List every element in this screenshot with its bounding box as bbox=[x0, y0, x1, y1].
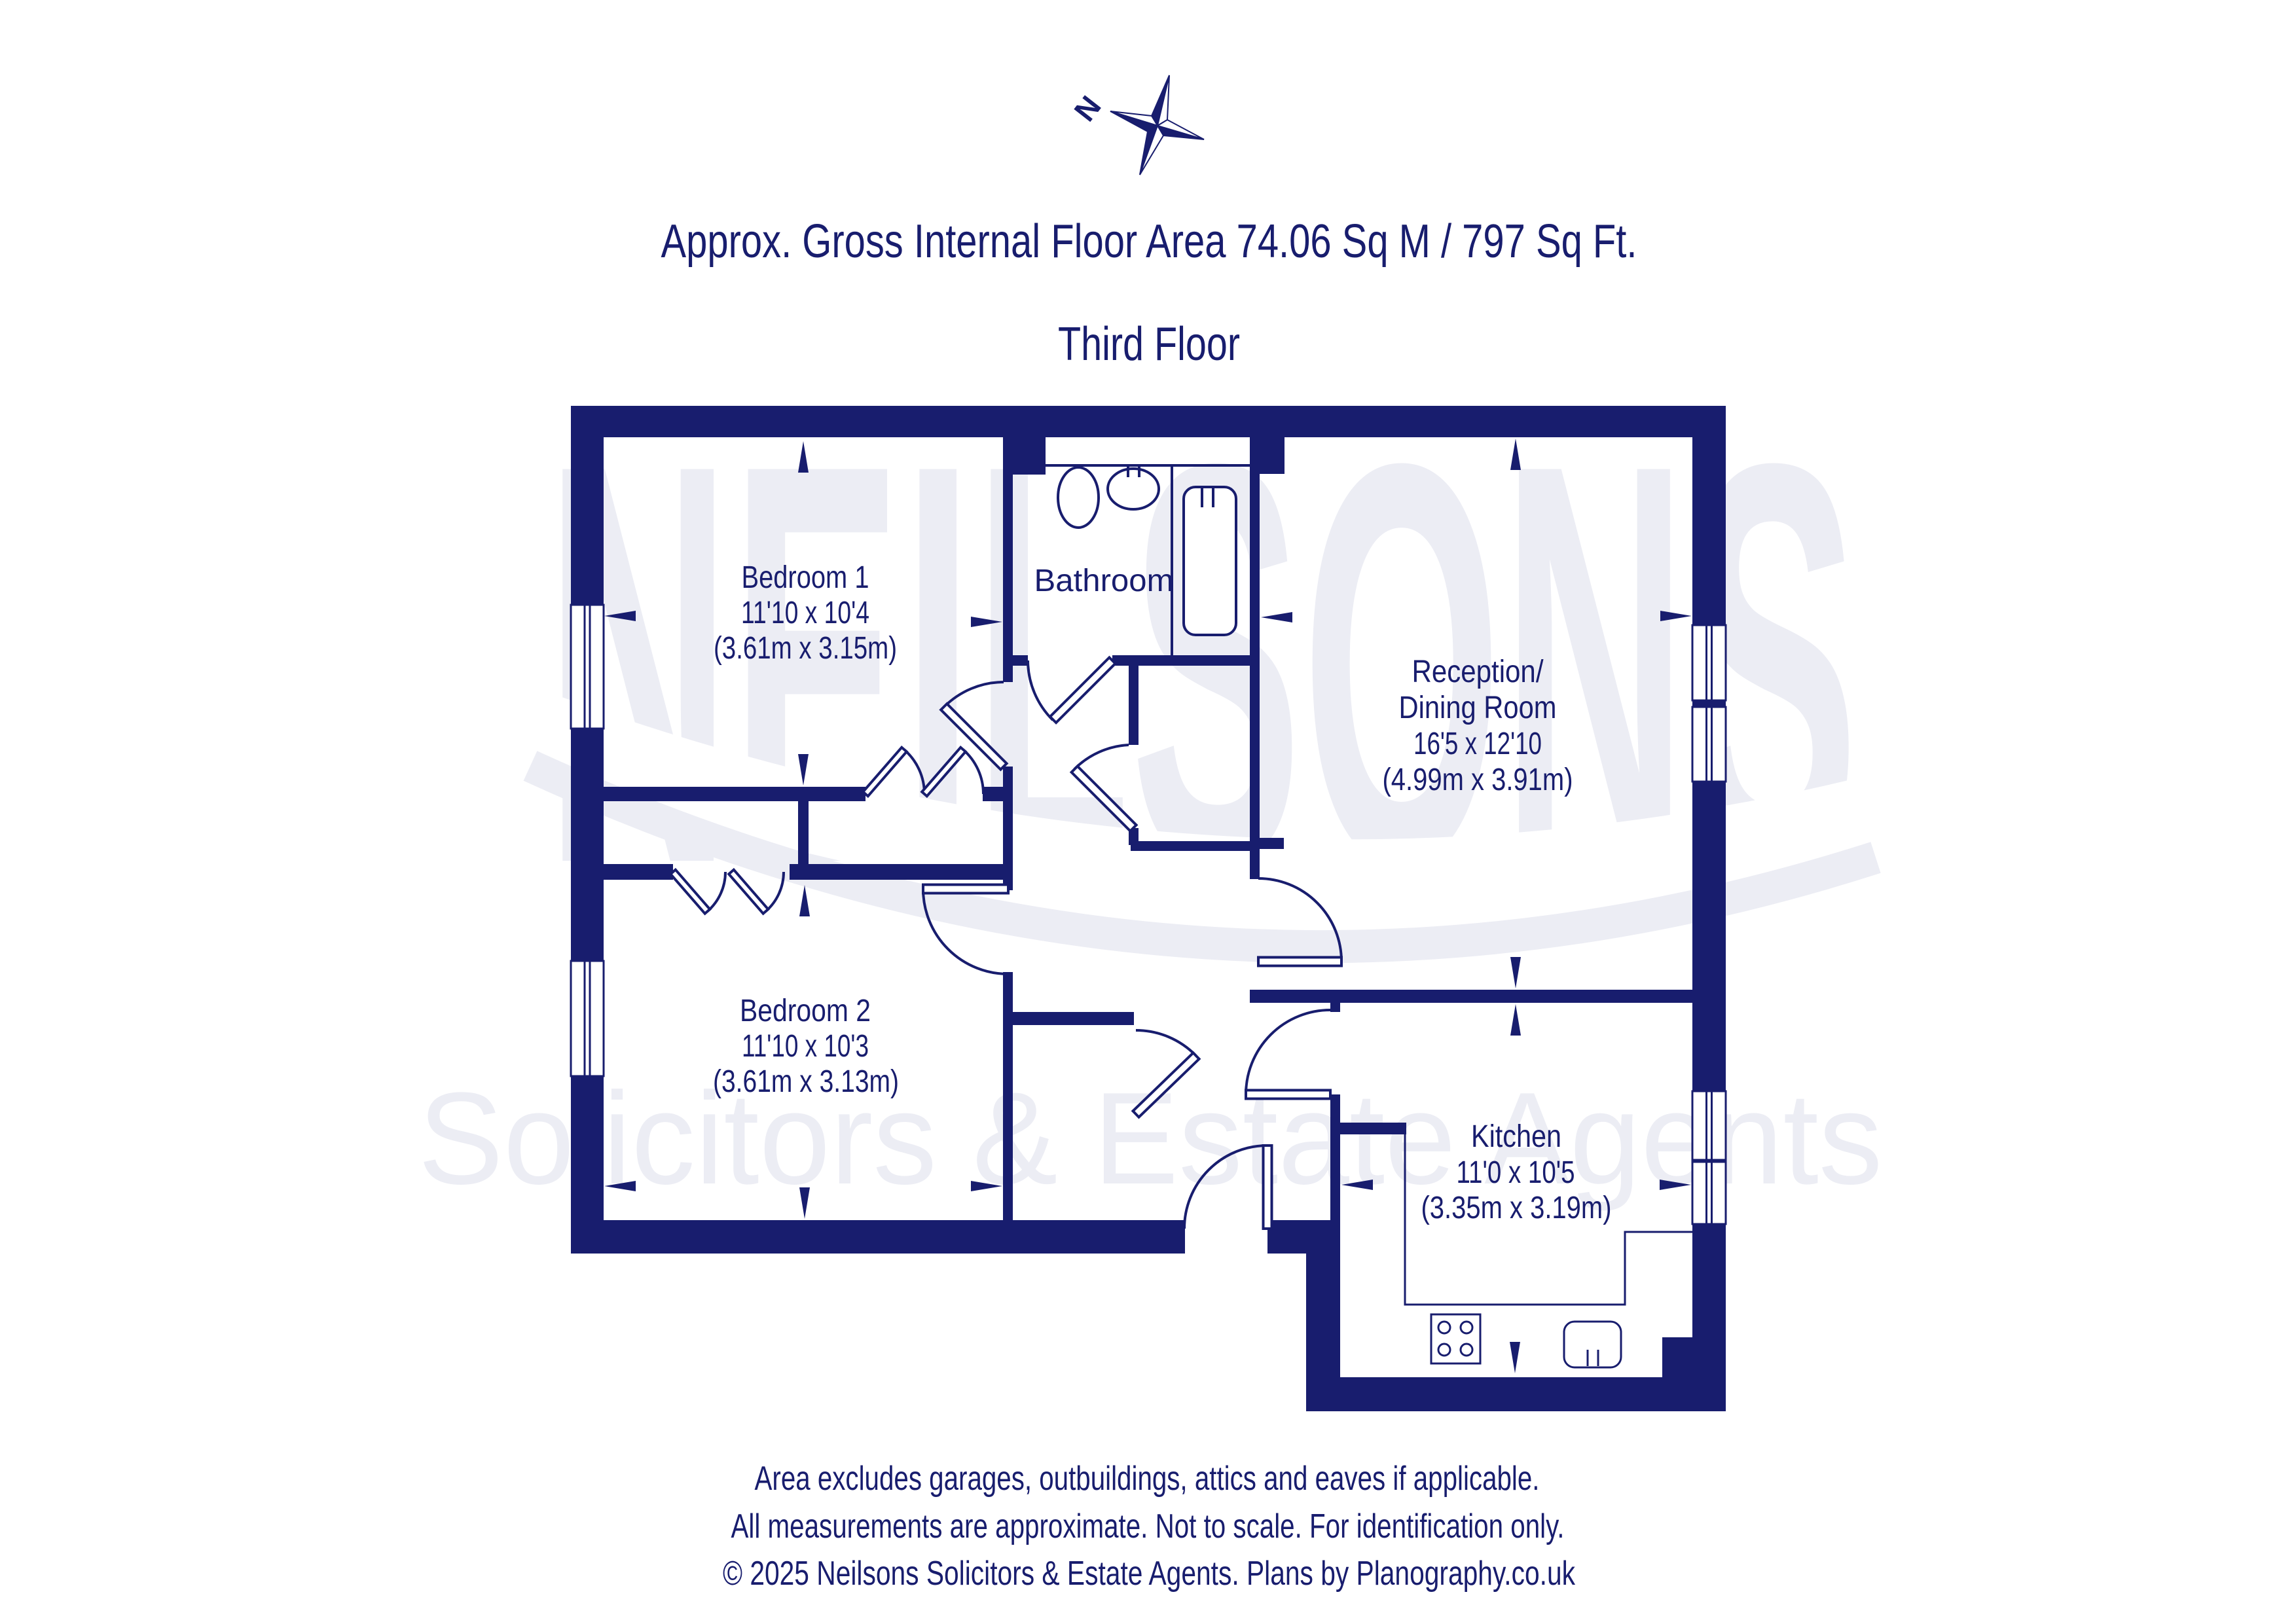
svg-text:© 2025 Neilsons Solicitors & E: © 2025 Neilsons Solicitors & Estate Agen… bbox=[723, 1555, 1576, 1593]
svg-text:(3.61m x 3.13m): (3.61m x 3.13m) bbox=[713, 1064, 899, 1099]
svg-text:Reception/: Reception/ bbox=[1412, 655, 1544, 689]
svg-text:(4.99m x 3.91m): (4.99m x 3.91m) bbox=[1383, 763, 1573, 797]
svg-text:Approx. Gross Internal Floor A: Approx. Gross Internal Floor Area 74.06 … bbox=[661, 215, 1637, 268]
svg-text:Area excludes garages, outbuil: Area excludes garages, outbuildings, att… bbox=[755, 1460, 1540, 1498]
svg-text:Bathroom: Bathroom bbox=[1034, 564, 1174, 598]
svg-text:Bedroom 2: Bedroom 2 bbox=[740, 994, 871, 1028]
svg-text:16'5 x 12'10: 16'5 x 12'10 bbox=[1413, 727, 1542, 761]
svg-text:Third Floor: Third Floor bbox=[1058, 318, 1240, 370]
svg-text:(3.61m x 3.15m): (3.61m x 3.15m) bbox=[714, 631, 897, 666]
svg-text:All measurements are approxima: All measurements are approximate. Not to… bbox=[731, 1507, 1565, 1545]
svg-text:11'10 x 10'4: 11'10 x 10'4 bbox=[741, 596, 869, 630]
svg-text:Solicitors & Estate Agents: Solicitors & Estate Agents bbox=[418, 1066, 1883, 1212]
svg-text:(3.35m x 3.19m): (3.35m x 3.19m) bbox=[1421, 1191, 1612, 1225]
svg-text:Bedroom 1: Bedroom 1 bbox=[742, 560, 869, 595]
svg-text:11'10 x 10'3: 11'10 x 10'3 bbox=[742, 1029, 869, 1064]
svg-text:11'0 x 10'5: 11'0 x 10'5 bbox=[1457, 1155, 1575, 1190]
svg-text:Kitchen: Kitchen bbox=[1471, 1119, 1561, 1154]
svg-text:Dining Room: Dining Room bbox=[1399, 691, 1557, 725]
